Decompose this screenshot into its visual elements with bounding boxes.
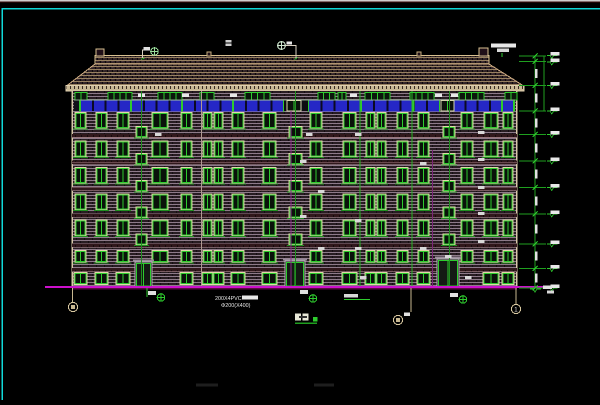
svg-text:200X4PVC: 200X4PVC xyxy=(215,296,242,302)
svg-text:Φ200(X400): Φ200(X400) xyxy=(221,303,251,309)
